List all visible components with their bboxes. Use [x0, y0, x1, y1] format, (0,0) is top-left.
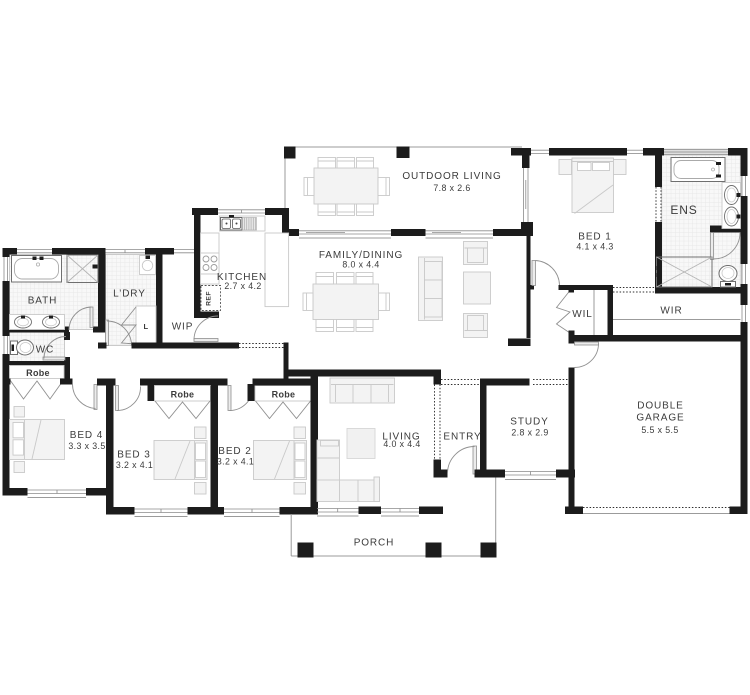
svg-text:GARAGE: GARAGE [636, 413, 684, 424]
svg-text:5.5 x 5.5: 5.5 x 5.5 [641, 425, 678, 435]
svg-text:WIP: WIP [172, 322, 194, 333]
svg-text:Robe: Robe [272, 390, 296, 400]
svg-text:Robe: Robe [26, 368, 50, 378]
svg-text:3.2 x 4.1: 3.2 x 4.1 [116, 460, 153, 470]
svg-text:4.1 x 4.3: 4.1 x 4.3 [576, 242, 613, 252]
svg-text:WIL: WIL [572, 309, 592, 320]
svg-text:3.3 x 3.5: 3.3 x 3.5 [68, 441, 105, 451]
svg-text:ENTRY: ENTRY [443, 432, 481, 443]
svg-text:2.8 x 2.9: 2.8 x 2.9 [511, 428, 548, 438]
svg-text:2.7 x 4.2: 2.7 x 4.2 [224, 281, 261, 291]
svg-text:8.0 x 4.4: 8.0 x 4.4 [342, 260, 379, 270]
svg-text:3.2 x 4.1: 3.2 x 4.1 [217, 457, 254, 467]
svg-text:4.0 x 4.4: 4.0 x 4.4 [383, 439, 420, 449]
svg-text:PORCH: PORCH [354, 538, 395, 549]
svg-text:L: L [144, 322, 149, 331]
svg-text:Robe: Robe [171, 390, 195, 400]
svg-text:ENS: ENS [670, 203, 697, 217]
svg-text:L’DRY: L’DRY [113, 289, 146, 300]
svg-text:7.8 x 2.6: 7.8 x 2.6 [433, 183, 470, 193]
svg-text:STUDY: STUDY [510, 417, 548, 428]
svg-text:BED 4: BED 4 [70, 430, 103, 441]
svg-text:OUTDOOR LIVING: OUTDOOR LIVING [402, 171, 501, 182]
svg-text:WIR: WIR [660, 306, 682, 317]
svg-text:REF: REF [206, 291, 213, 306]
svg-text:WC: WC [36, 345, 54, 356]
svg-text:DOUBLE: DOUBLE [637, 401, 684, 412]
svg-text:BED 2: BED 2 [218, 446, 251, 457]
svg-text:BED 3: BED 3 [117, 450, 150, 461]
svg-text:BATH: BATH [28, 296, 58, 307]
